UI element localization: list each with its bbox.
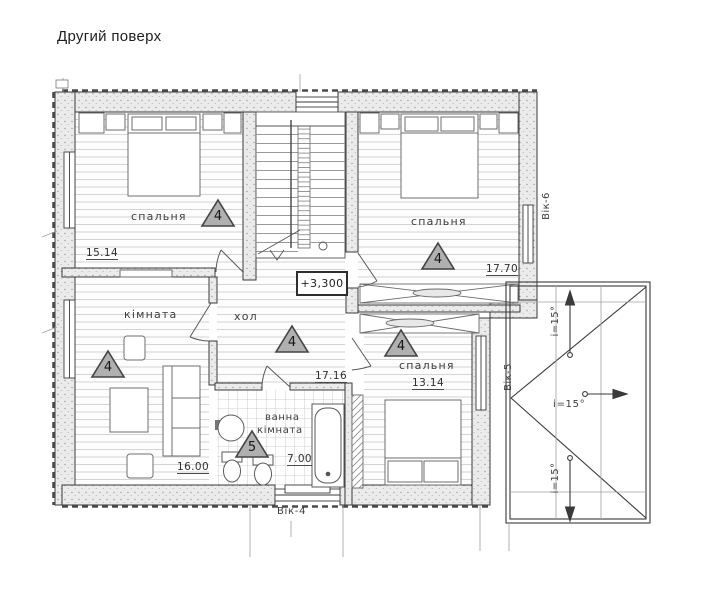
room-label-bedroom-top-right: спальня <box>411 215 467 228</box>
area-hall: 17.16 <box>315 370 347 383</box>
finish-marker-number: 4 <box>383 339 419 354</box>
area-bedroom-bottom-right: 13.14 <box>412 377 444 390</box>
finish-marker-number: 4 <box>200 209 236 224</box>
room-label-bedroom-bottom-right: спальня <box>399 359 455 372</box>
floor-plan-drawing <box>0 0 718 616</box>
finish-marker-bedroom-bottom-right: 4 <box>383 327 419 359</box>
roof-slope-label-bottom: і=15° <box>549 461 563 495</box>
roof-slope-label-middle: і=15° <box>553 399 585 410</box>
area-bedroom-top-right: 17.70 <box>486 263 518 276</box>
floor-plan-page: Другий поверх спальня спальня кімната хо… <box>0 0 718 616</box>
finish-marker-living-room: 4 <box>90 348 126 380</box>
window-tag-6: Вік-6 <box>540 189 554 223</box>
finish-marker-bedroom-top-left: 4 <box>200 197 236 229</box>
area-bathroom: 7.00 <box>287 453 312 466</box>
roof-slope-label-top: і=15° <box>549 304 563 338</box>
area-living-room: 16.00 <box>177 461 209 474</box>
room-label-living-room: кімната <box>124 308 177 321</box>
finish-marker-number: 4 <box>420 252 456 267</box>
staircase <box>256 112 345 260</box>
finish-marker-number: 4 <box>274 335 310 350</box>
finish-marker-bathroom: 5 <box>234 428 270 460</box>
window-tag-4: Вік-4 <box>277 506 306 517</box>
area-bedroom-top-left: 15.14 <box>86 247 118 260</box>
window-tag-5: Вік-5 <box>502 360 516 394</box>
finish-marker-bedroom-top-right: 4 <box>420 240 456 272</box>
room-label-bathroom-line1: ванна <box>265 412 300 423</box>
finish-marker-number: 4 <box>90 360 126 375</box>
finish-marker-hall: 4 <box>274 323 310 355</box>
room-label-hall: хол <box>234 310 258 323</box>
elevation-mark: +3,300 <box>296 271 348 296</box>
finish-marker-number: 5 <box>234 440 270 455</box>
room-label-bedroom-top-left: спальня <box>131 210 187 223</box>
drawing-title: Другий поверх <box>57 28 161 45</box>
